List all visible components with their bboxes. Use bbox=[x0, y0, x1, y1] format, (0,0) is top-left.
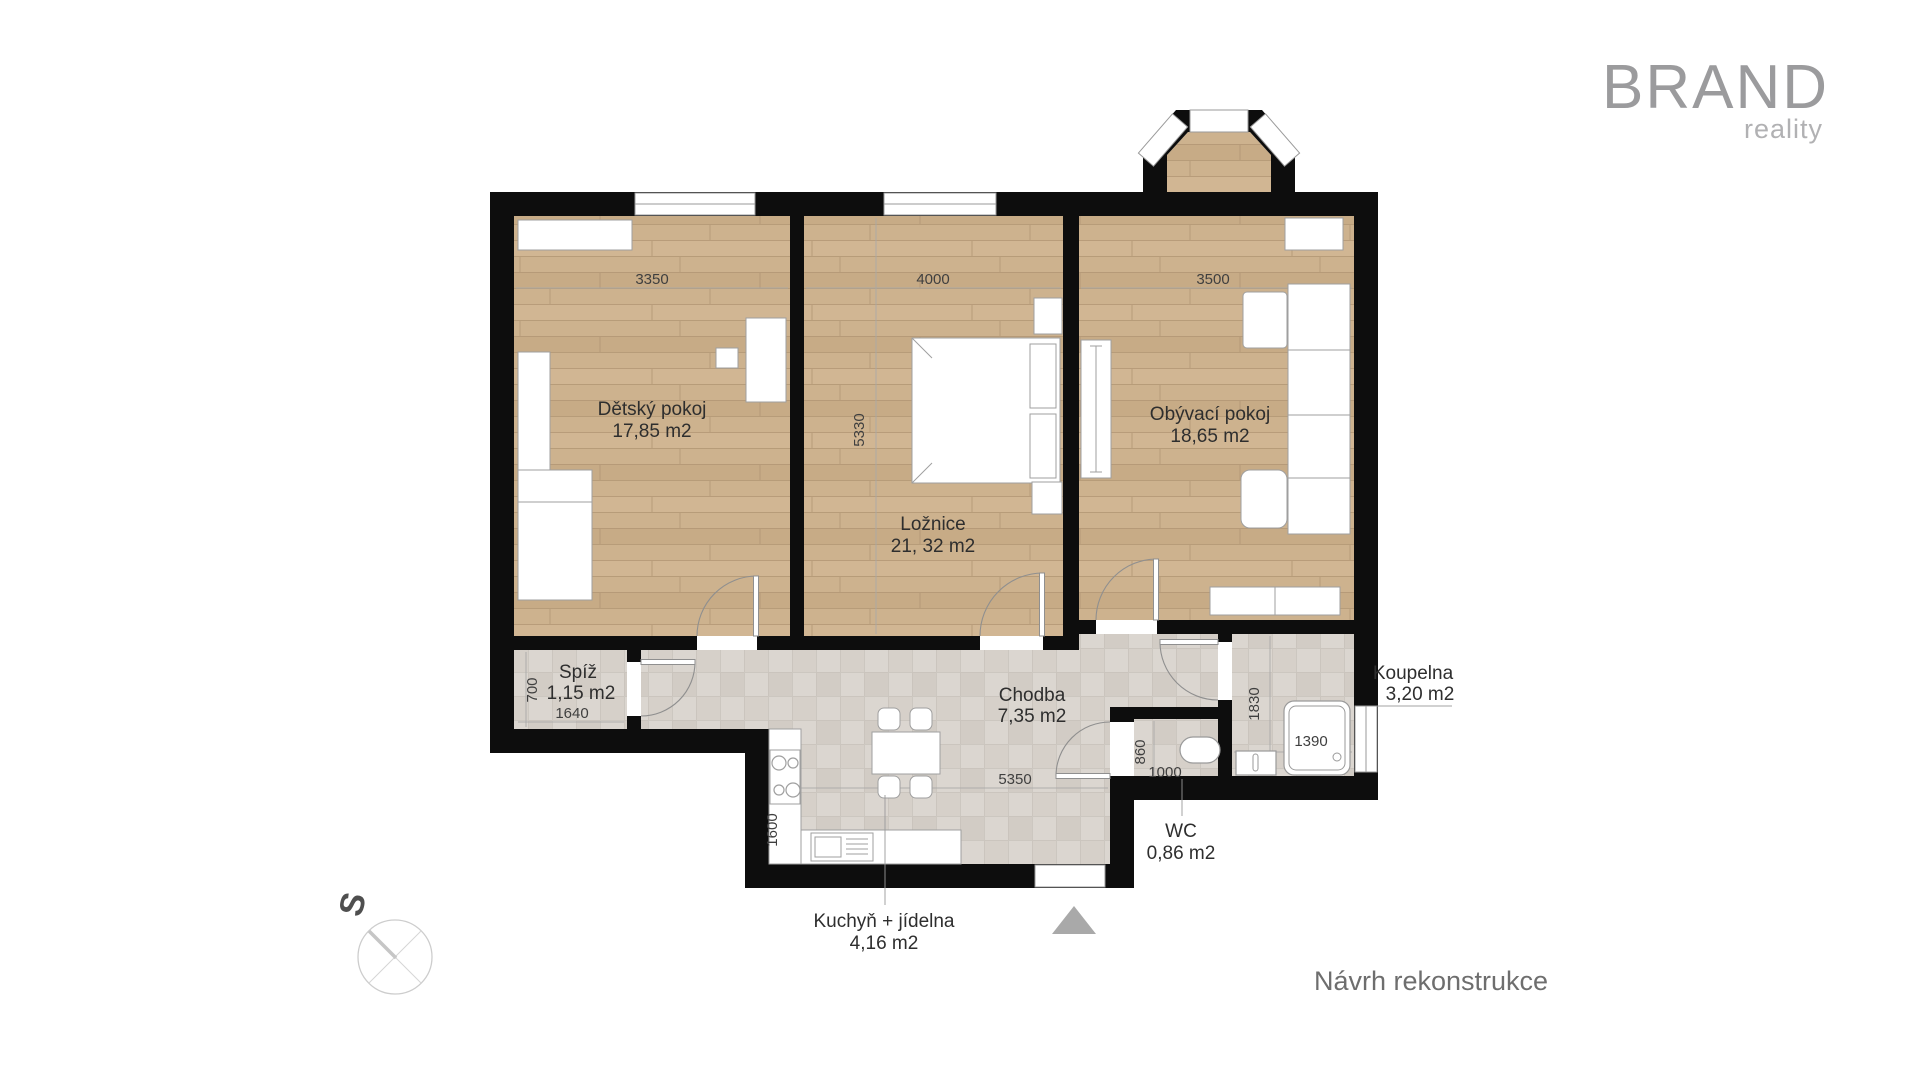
label-childrens-room: Dětský pokoj bbox=[598, 399, 707, 420]
coffee-table bbox=[1241, 470, 1287, 528]
wall-left bbox=[490, 192, 514, 753]
door-leaf-childrens bbox=[754, 576, 759, 636]
toilet bbox=[1180, 737, 1220, 763]
label-living-room: Obývací pokoj bbox=[1150, 404, 1270, 425]
nightstand bbox=[1034, 298, 1062, 334]
dim-wc-width: 1000 bbox=[1148, 764, 1181, 781]
wall-pantry-bottom bbox=[490, 729, 769, 753]
door-opening-pantry bbox=[627, 662, 641, 716]
chair-4 bbox=[910, 776, 932, 798]
cabinet-living bbox=[1285, 218, 1343, 250]
shelf-childrens bbox=[716, 348, 738, 368]
compass-north-label: S bbox=[332, 888, 375, 920]
sink-tap bbox=[1253, 754, 1258, 771]
pillow-1 bbox=[1030, 344, 1056, 408]
door-opening-living bbox=[1096, 620, 1157, 634]
desk-childrens bbox=[746, 318, 786, 402]
wall-bedroom-living-divider bbox=[1063, 216, 1079, 650]
door-opening-bedroom bbox=[980, 636, 1043, 650]
window-bay-center bbox=[1190, 110, 1248, 132]
floorplan-page: Dětský pokoj 17,85 m2 Ložnice 21, 32 m2 … bbox=[0, 0, 1920, 1079]
door-leaf-wc bbox=[1056, 774, 1110, 779]
label-wc-area: 0,86 m2 bbox=[1147, 843, 1216, 864]
dim-bathroom-width: 1390 bbox=[1294, 733, 1327, 750]
label-bathroom: Koupelna bbox=[1373, 663, 1454, 684]
dining-table bbox=[872, 732, 940, 774]
label-kitchen: Kuchyň + jídelna bbox=[813, 911, 954, 932]
sofa bbox=[1288, 284, 1350, 534]
label-bedroom: Ložnice bbox=[900, 514, 966, 535]
cabinet-childrens bbox=[518, 352, 550, 470]
dim-pantry-height: 700 bbox=[524, 677, 541, 702]
dim-wc-height: 860 bbox=[1132, 739, 1149, 764]
door-opening-wc bbox=[1110, 722, 1134, 776]
door-leaf-pantry bbox=[641, 660, 695, 665]
entry-door-opening bbox=[1035, 865, 1105, 887]
label-pantry: Spíž bbox=[559, 662, 597, 683]
door-leaf-living bbox=[1154, 559, 1159, 620]
dim-hallway-width: 5350 bbox=[998, 771, 1031, 788]
dim-bedroom-width: 4000 bbox=[916, 271, 949, 288]
label-kitchen-area: 4,16 m2 bbox=[850, 933, 919, 954]
wardrobe-childrens bbox=[518, 220, 632, 250]
logo-brand-text: BRAND bbox=[1602, 53, 1829, 122]
bed-childrens bbox=[518, 470, 592, 600]
ottoman bbox=[1243, 292, 1287, 348]
entry-arrow-icon bbox=[1052, 906, 1096, 934]
label-wc: WC bbox=[1165, 821, 1197, 842]
dim-kitchen-height: 1600 bbox=[764, 813, 781, 846]
chair-2 bbox=[910, 708, 932, 730]
label-bedroom-area: 21, 32 m2 bbox=[891, 536, 976, 557]
floorplan-canvas: Dětský pokoj 17,85 m2 Ložnice 21, 32 m2 … bbox=[0, 0, 1920, 1079]
logo: BRAND reality bbox=[1602, 53, 1829, 144]
label-living-room-area: 18,65 m2 bbox=[1170, 426, 1249, 447]
compass: S bbox=[332, 888, 432, 994]
compass-north-pointer bbox=[369, 931, 396, 958]
chair-3 bbox=[878, 776, 900, 798]
pillow-2 bbox=[1030, 414, 1056, 478]
label-hallway-area: 7,35 m2 bbox=[998, 706, 1067, 727]
dim-pantry-width: 1640 bbox=[555, 705, 588, 722]
chair-1 bbox=[878, 708, 900, 730]
dim-living-width: 3500 bbox=[1196, 271, 1229, 288]
label-pantry-area: 1,15 m2 bbox=[547, 683, 616, 704]
bedroom-chair bbox=[1032, 482, 1062, 514]
label-childrens-room-area: 17,85 m2 bbox=[612, 421, 691, 442]
dim-bedroom-height: 5330 bbox=[851, 413, 868, 446]
door-opening-bathroom bbox=[1218, 642, 1232, 700]
logo-tagline-text: reality bbox=[1744, 114, 1823, 144]
dim-childrens-width: 3350 bbox=[635, 271, 668, 288]
door-leaf-bathroom bbox=[1160, 640, 1218, 645]
wall-childrens-bedroom-divider bbox=[790, 216, 804, 636]
drawing-caption: Návrh rekonstrukce bbox=[1314, 966, 1548, 996]
door-leaf-bedroom bbox=[1040, 573, 1045, 636]
dim-bathroom-height: 1830 bbox=[1246, 687, 1263, 720]
label-hallway: Chodba bbox=[999, 685, 1066, 706]
wall-wc-top bbox=[1134, 707, 1218, 719]
label-bathroom-area: 3,20 m2 bbox=[1386, 684, 1455, 705]
door-opening-childrens bbox=[697, 636, 757, 650]
floor-hall-extension bbox=[1079, 634, 1218, 719]
